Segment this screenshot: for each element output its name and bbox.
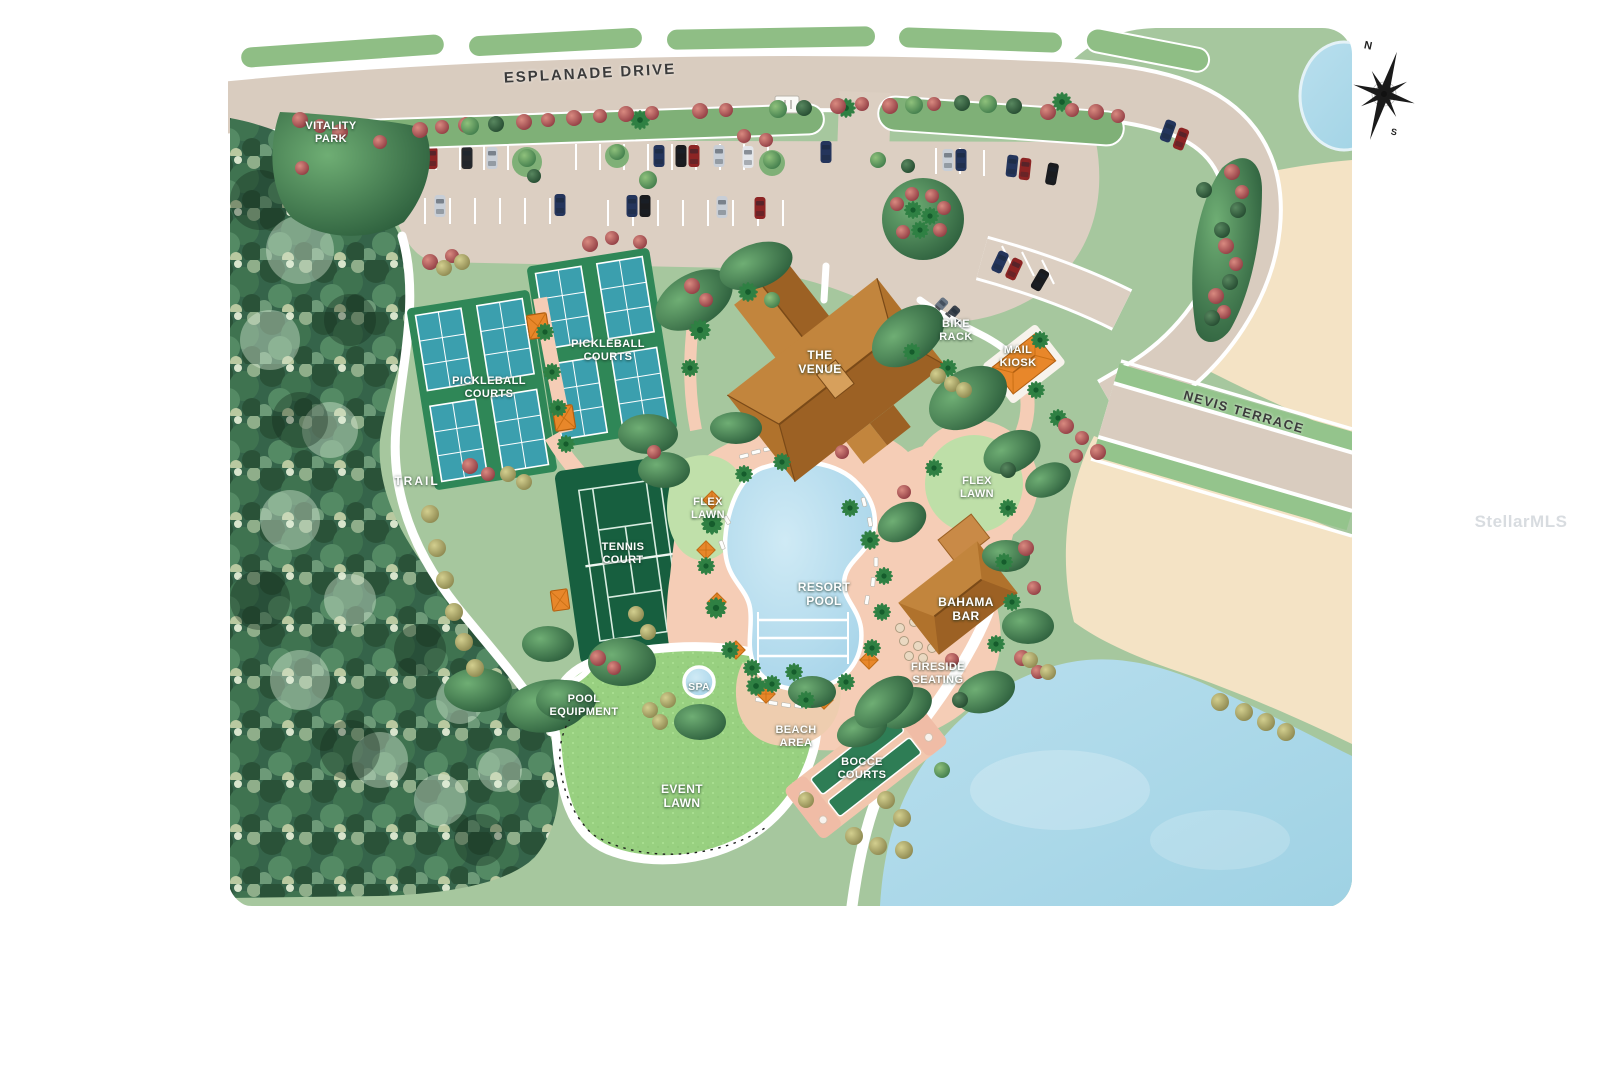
community-site-plan-map [228, 24, 1352, 908]
trail-label: TRAIL [394, 474, 439, 488]
pool-equipment-label: POOL EQUIPMENT [543, 693, 625, 719]
pickleball-courts-west-label: PICKLEBALL COURTS [443, 375, 535, 401]
fireside-seating-label: FIRESIDE SEATING [906, 661, 970, 687]
shade-sail [550, 589, 570, 612]
tennis-court-label: TENNIS COURT [594, 541, 652, 567]
mail-kiosk-label: MAIL KIOSK [997, 344, 1039, 370]
lap-lanes [758, 612, 848, 664]
beach-area-label: BEACH AREA [773, 724, 819, 750]
pickleball-courts-east-label: PICKLEBALL COURTS [562, 338, 654, 364]
resort-pool-label: RESORT POOL [796, 580, 852, 608]
site-plan-page: N S ESPLANADE DRIVE NEVIS TERRACE VITALI… [0, 0, 1600, 1066]
flex-lawn-west-label: FLEX LAWN [689, 496, 727, 522]
bahama-bar-label: BAHAMA BAR [937, 595, 995, 623]
stellar-mls-watermark: StellarMLS [1475, 512, 1568, 532]
vitality-park-label: VITALITY PARK [299, 120, 363, 146]
flex-lawn-east-label: FLEX LAWN [958, 475, 996, 501]
bocce-courts-label: BOCCE COURTS [834, 756, 890, 782]
the-venue-label: THE VENUE [794, 348, 846, 376]
compass-rose [1340, 32, 1424, 144]
spa-label: SPA [688, 681, 710, 693]
event-lawn-label: EVENT LAWN [659, 782, 705, 810]
bike-rack-label: BIKE RACK [935, 318, 977, 344]
